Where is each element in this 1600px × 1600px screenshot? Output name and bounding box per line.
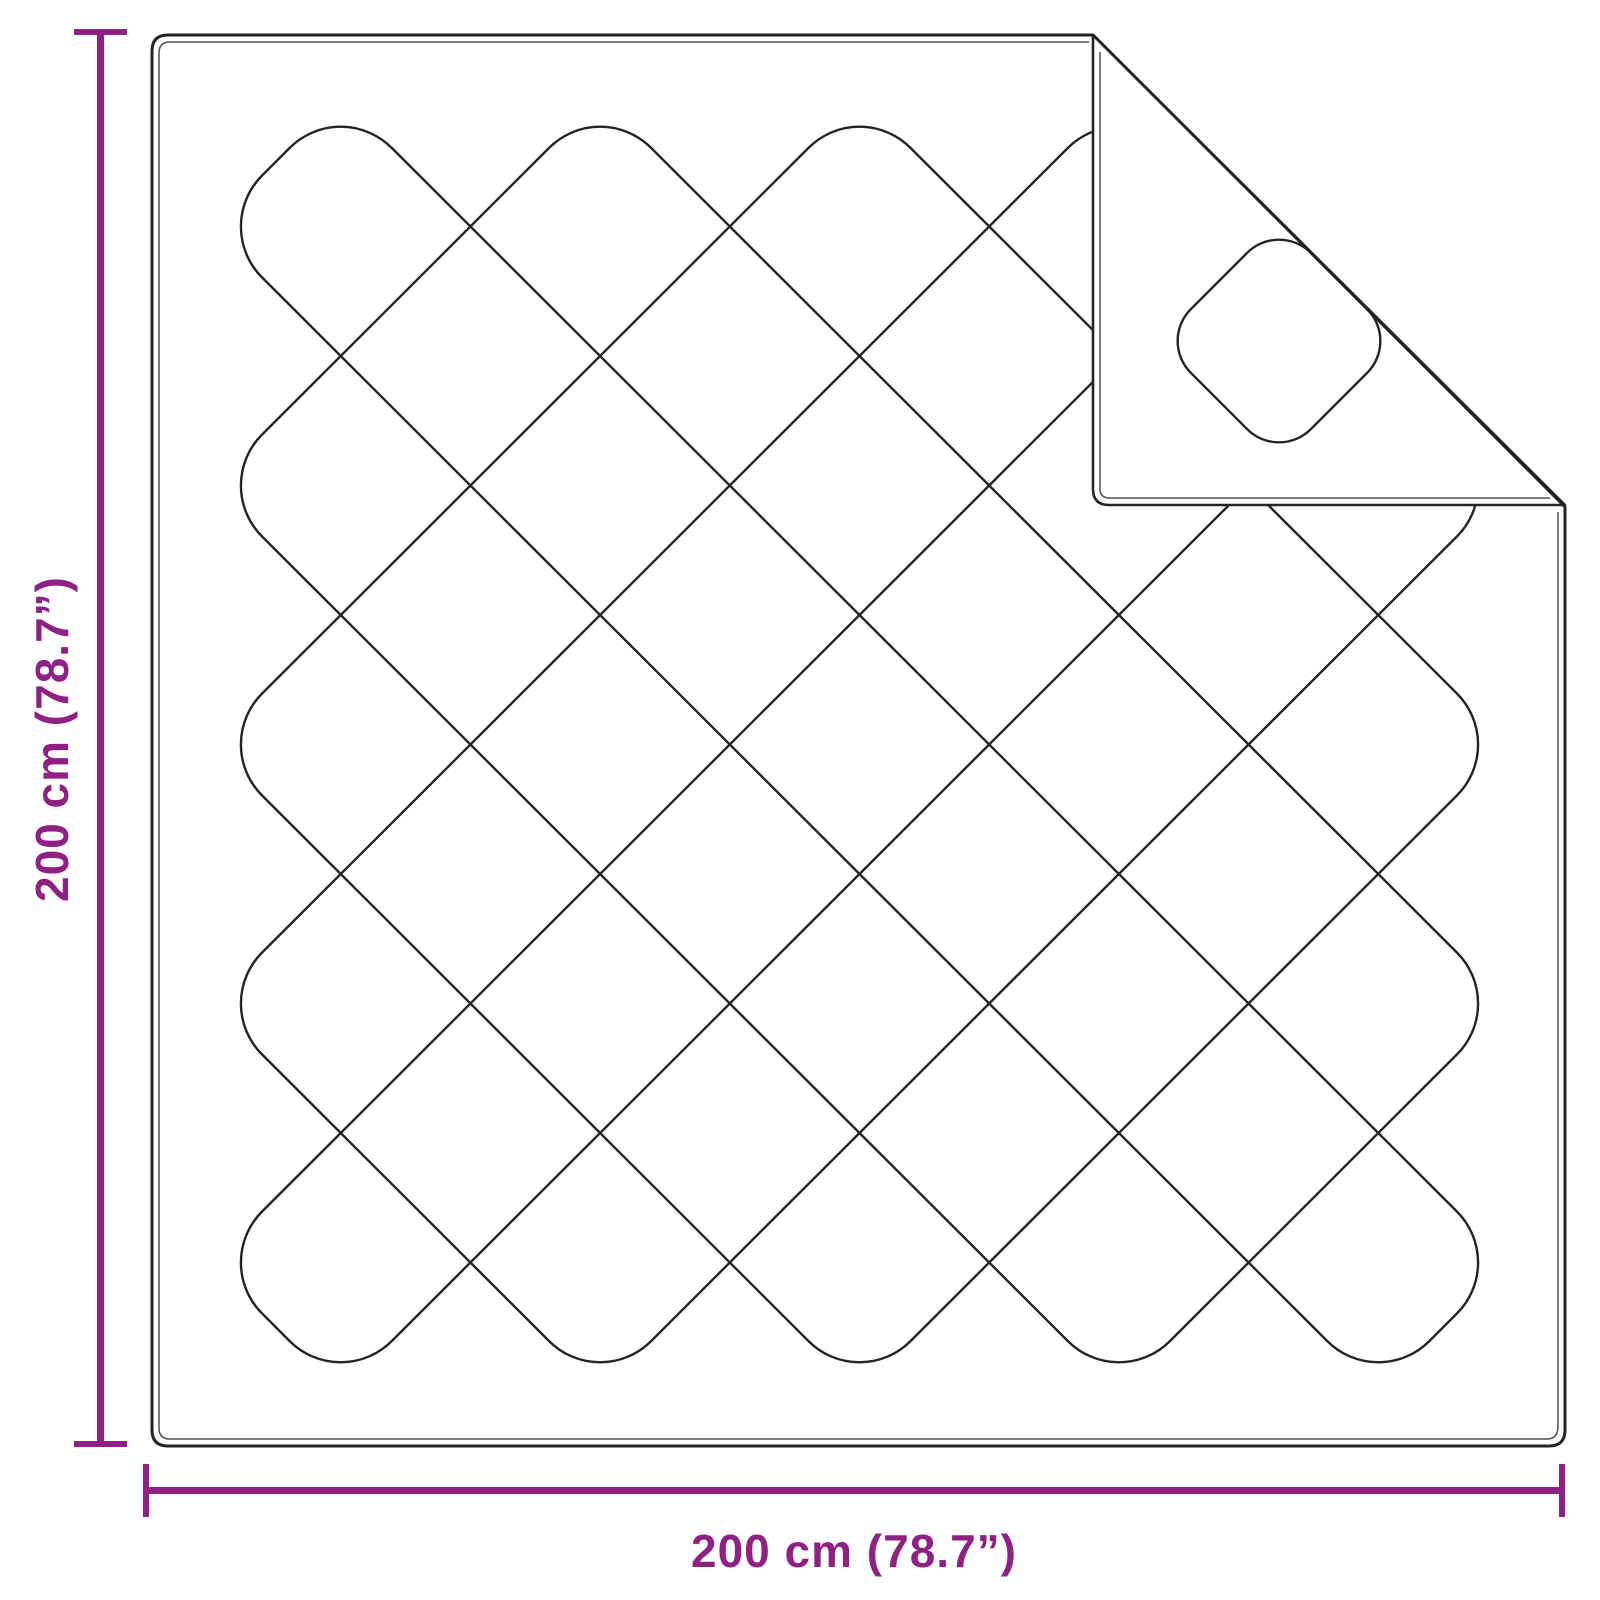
width-dimension-label: 200 cm (78.7”) — [691, 1525, 1017, 1577]
height-dimension-label: 200 cm (78.7”) — [26, 576, 78, 902]
blanket-silhouette — [152, 35, 1565, 1446]
folded-corner — [1093, 35, 1565, 507]
width-dimension-line — [146, 1487, 1562, 1494]
width-dimension-right-cap — [1559, 1464, 1565, 1517]
height-dimension-top-cap — [74, 29, 127, 35]
blanket — [152, 35, 1565, 1446]
diagram-canvas: 200 cm (78.7”) 200 cm (78.7”) — [0, 0, 1600, 1600]
height-dimension-line — [97, 32, 104, 1444]
height-dimension: 200 cm (78.7”) — [26, 29, 127, 1447]
width-dimension-left-cap — [143, 1464, 149, 1517]
width-dimension: 200 cm (78.7”) — [143, 1464, 1565, 1577]
height-dimension-bottom-cap — [74, 1441, 127, 1447]
